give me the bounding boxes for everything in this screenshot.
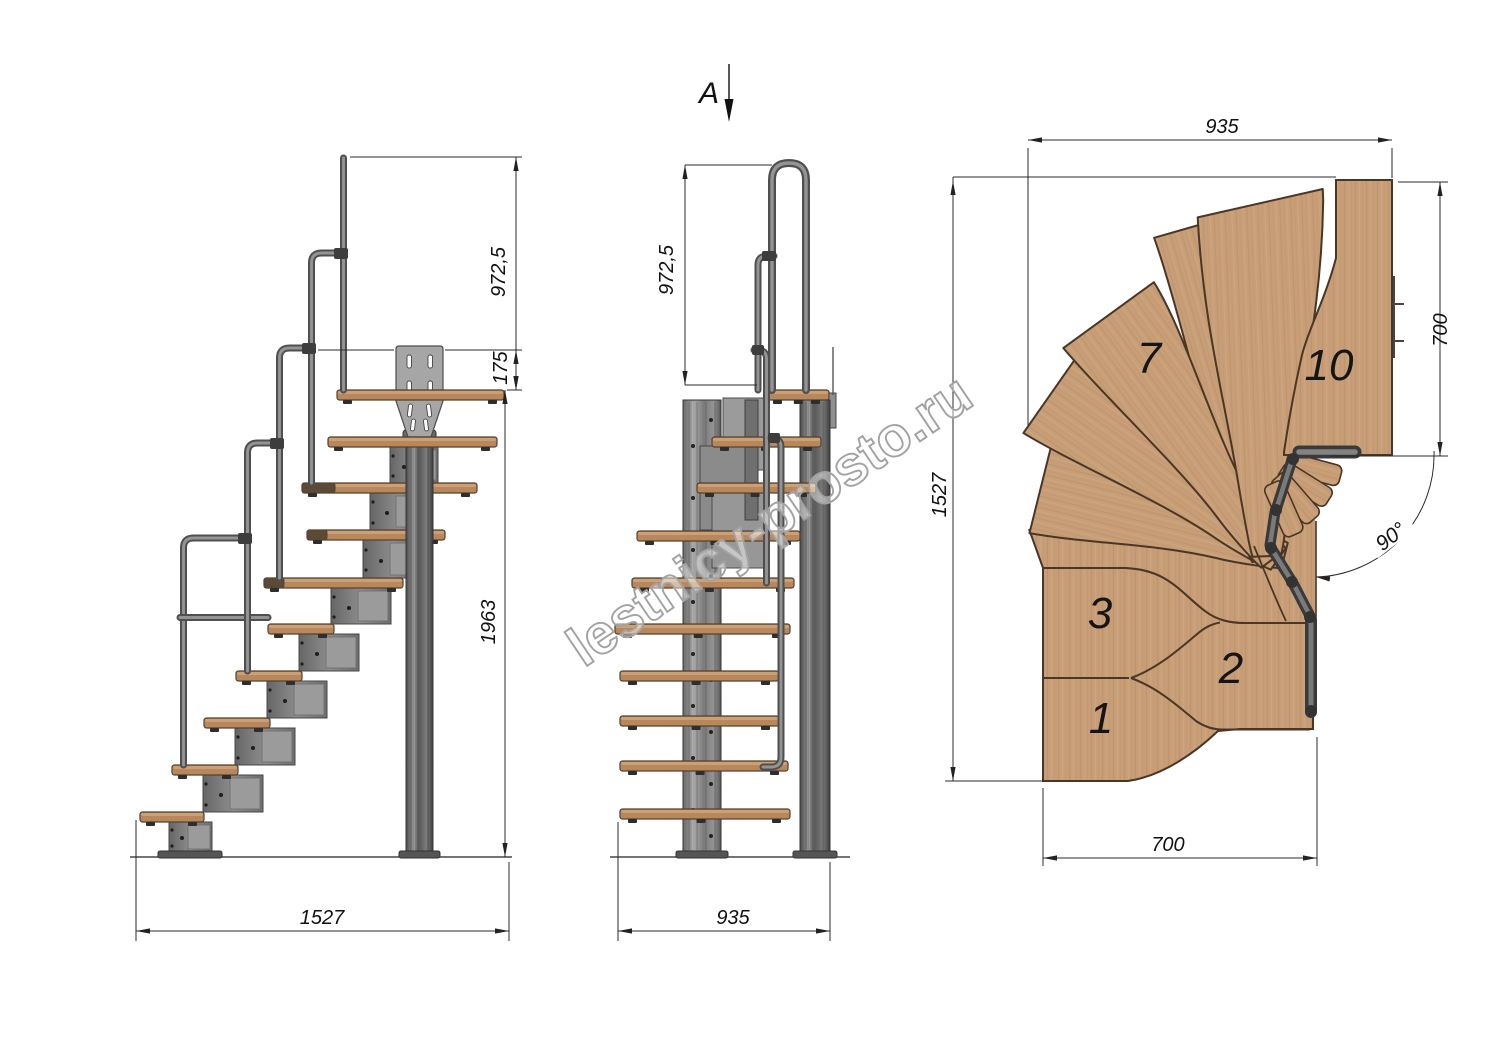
svg-text:935: 935 [1205, 116, 1239, 138]
svg-text:1963: 1963 [478, 600, 500, 645]
svg-text:7: 7 [1137, 334, 1163, 383]
svg-text:175: 175 [490, 350, 512, 384]
svg-text:1527: 1527 [300, 907, 345, 929]
svg-text:3: 3 [1088, 589, 1113, 638]
svg-text:700: 700 [1151, 834, 1184, 856]
svg-text:700: 700 [1430, 313, 1452, 346]
svg-text:972,5: 972,5 [656, 244, 678, 295]
svg-text:935: 935 [716, 907, 750, 929]
svg-text:1527: 1527 [929, 472, 951, 517]
svg-text:10: 10 [1305, 341, 1354, 390]
svg-text:972,5: 972,5 [488, 246, 510, 297]
svg-text:1: 1 [1089, 694, 1113, 743]
svg-text:A: A [697, 77, 719, 110]
svg-text:2: 2 [1218, 644, 1243, 693]
